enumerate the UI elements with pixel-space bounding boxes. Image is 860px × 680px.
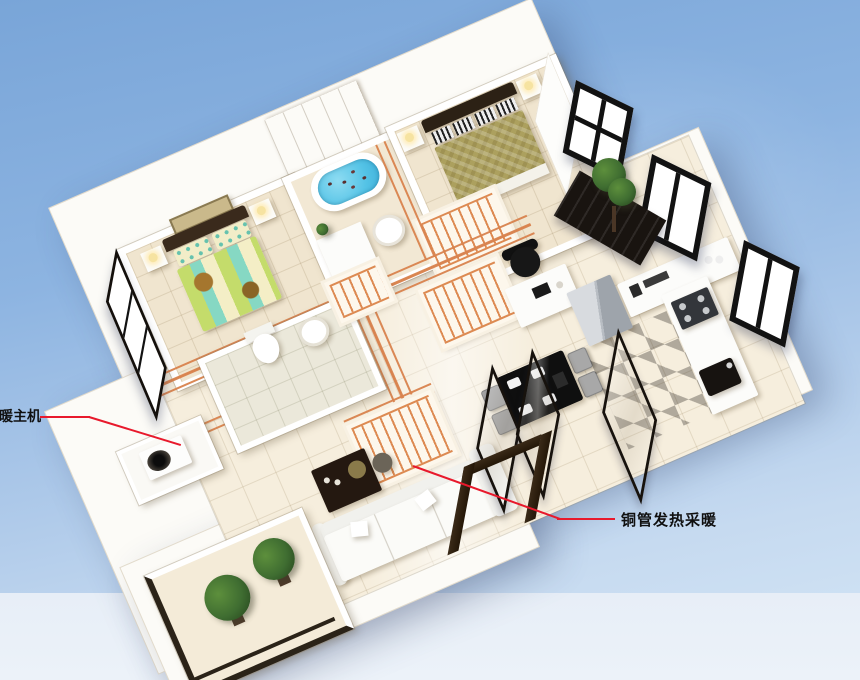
teacups [323, 476, 331, 484]
floor-heating-label: 铜管发热采暖 [621, 509, 717, 530]
gold-tray [345, 458, 369, 482]
heat-pump-fan [144, 447, 174, 475]
scene: 暖主机 铜管发热采暖 [0, 0, 860, 680]
leader-line-heat-pump [40, 416, 90, 418]
flower-petals [328, 182, 333, 186]
heat-pump-label: 暖主机 [0, 406, 41, 426]
burners [678, 302, 687, 311]
window-mullion [138, 326, 148, 374]
tall-plant [608, 178, 636, 206]
leader-line-floor-heating [557, 518, 615, 520]
window-mullion [123, 291, 133, 339]
plant-trunk [612, 206, 616, 232]
window-mullion [756, 258, 773, 329]
sofa-pillow [350, 521, 368, 538]
table-centerpiece [552, 371, 569, 389]
window-mullion [664, 172, 681, 241]
plate [506, 376, 522, 389]
